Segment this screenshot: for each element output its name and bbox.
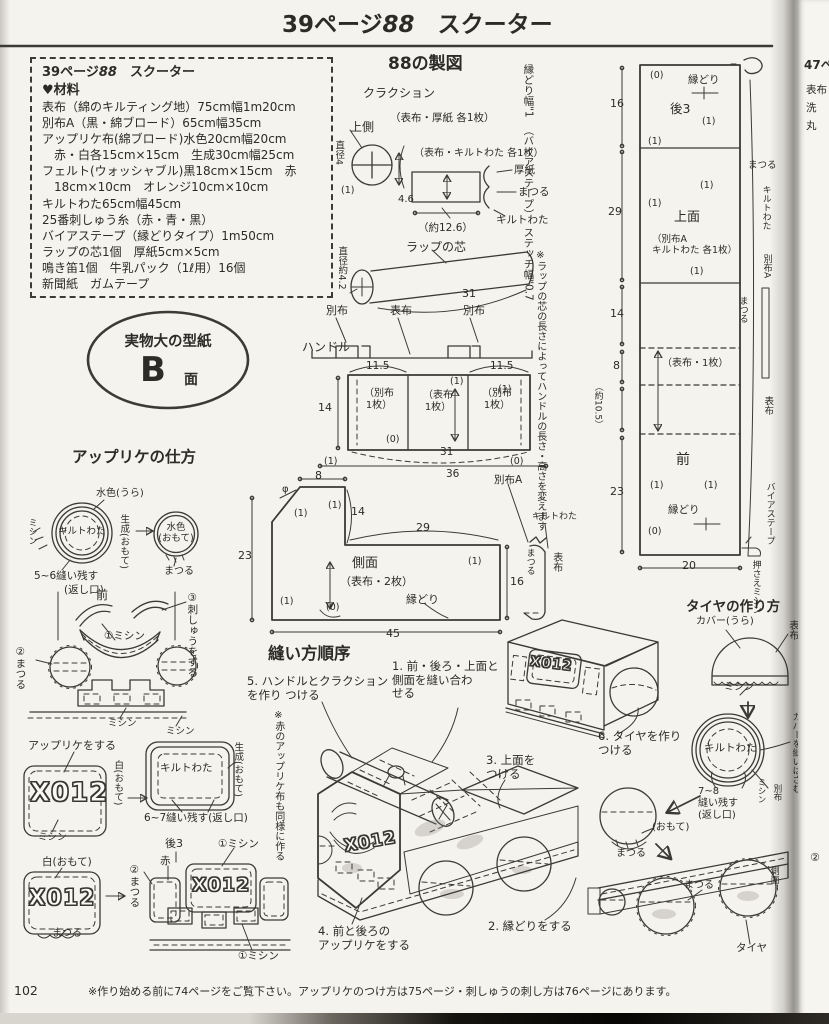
tall-allowance: (1) (704, 480, 717, 491)
tall-front-label: 前 (676, 452, 690, 469)
attach-tire-label: タイヤ (736, 942, 767, 954)
sewing-step-3: 3. 上面を つける (486, 754, 535, 781)
x012-step1: ①ミシン (218, 838, 259, 850)
x012-step2: ②まつる (128, 864, 140, 916)
tire-heading: タイヤの作り方 (686, 600, 780, 616)
tall-dim-8: 8 (613, 360, 620, 373)
side-name: 側面 (352, 556, 378, 571)
edging-note-line: 縁どり幅"1 (522, 64, 534, 118)
side-edging: 縁どり (406, 594, 439, 607)
badge-caption: 実物大の型紙 (112, 334, 224, 351)
side-allowance: (1) (328, 500, 341, 511)
side-dim-16: 16 (510, 576, 524, 589)
side-dim-8: 8 (315, 470, 322, 483)
side-material: （表布・2枚） (340, 576, 413, 589)
attach-matsuru: まつる (684, 880, 714, 892)
wrap-core-diameter: 直径約4.2 (336, 246, 347, 304)
drafting-heading: 88の製図 (388, 54, 463, 74)
applique-back-label: 水色(うら) (96, 488, 144, 500)
tire-front-side: (おもて) (652, 822, 689, 834)
handle-cloth-label: 別布 (326, 305, 348, 318)
handle-cloth-label: 別布 (463, 305, 485, 318)
handle-allowance: (0) (386, 434, 399, 445)
horn-cardboard: 厚紙 (514, 164, 535, 176)
side-allowance: (1) (294, 508, 307, 519)
handle-cell-left: （別布 1枚） (356, 388, 402, 412)
tall-dim-14: 14 (610, 308, 624, 321)
horn-upper: 上側 (350, 120, 374, 134)
edging-note: 縁どり幅"1 （バイアステープ） ステッチ幅"0.7 (522, 64, 534, 204)
scan-bottom-band (0, 1013, 829, 1024)
tall-allowance: (0) (650, 70, 663, 81)
x012-leave-open: 6~7縫い残す(返し口) (144, 812, 248, 824)
next-page-fragment: 洗 (806, 102, 817, 114)
side-dim-23: 23 (238, 550, 252, 563)
handle-height: 14 (318, 402, 332, 415)
tire-leave-open: 7~8 縫い残す (返し口) (698, 786, 738, 821)
x012-plate-text: X012 (30, 778, 102, 808)
tall-allowance: (1) (648, 198, 661, 209)
x012-back-label: 後3 (165, 838, 183, 851)
handle-allowance: (1) (324, 456, 337, 467)
tire-machine2: ミシン (756, 778, 766, 810)
badge-letter: B (140, 350, 166, 390)
side-fabric: 表布 (550, 552, 562, 580)
tall-mid-material: （表布・1枚） (662, 358, 728, 370)
sewing-step-1: 1. 前・後ろ・上面と 側面を縫い合わ せる (392, 660, 499, 701)
face-front-label: 前 (96, 588, 108, 602)
handle-width-left: 11.5 (366, 360, 389, 372)
tire-batting: キルトわた (704, 742, 757, 754)
x012-red-note: ※赤のアップリケ布も同様に作る (272, 710, 284, 824)
face-step3: ③刺しゅうをする (186, 592, 198, 692)
x012-plate-text: X012 (192, 874, 250, 896)
x012-plate-text: X012 (28, 886, 96, 911)
front-design-sketch (28, 592, 198, 726)
applique-base: 生成(おもて) (118, 514, 129, 578)
handle-allowance: (1) (450, 376, 463, 387)
tall-edging-top: 縁どり (688, 74, 720, 86)
horn-diameter: 直径4 (333, 140, 344, 190)
side-panel-sketch (252, 479, 548, 632)
x012-matsuru: まつる (52, 928, 82, 940)
tall-allowance: (1) (702, 116, 715, 127)
book-gutter-shadow (770, 0, 800, 1024)
face-machine: ミシン (108, 718, 137, 729)
wrap-core-sketch (350, 250, 533, 312)
x012-batting: キルトわた (160, 762, 213, 774)
applique-machine: ミシン (26, 518, 37, 560)
horn-batting: キルトわた (496, 214, 549, 226)
sewing-step-2: 2. 縁どりをする (488, 920, 572, 934)
handle-cell-mid: （表布 1枚） (412, 390, 464, 414)
next-page-fragment: 47ペ (804, 58, 829, 72)
tall-dim-23: 23 (610, 486, 624, 499)
tire-matsuru: まつる (616, 848, 646, 860)
next-page-fragment: 丸 (806, 120, 817, 132)
tall-press-stitch: 押さえミシン (750, 560, 761, 602)
next-page-edge (798, 0, 829, 1024)
tall-edging-bottom: 縁どり (668, 504, 700, 516)
side-dim-14: 14 (351, 506, 365, 519)
horn-mat2: （表布・キルトわた 各1枚） (414, 148, 544, 160)
applique-matsuru: まつる (164, 566, 194, 578)
side-dim-29: 29 (416, 522, 430, 535)
tall-top-name: 上面 (674, 210, 700, 225)
side-batting: キルトわた (532, 512, 577, 523)
applique-heading: アップリケの仕方 (72, 448, 196, 466)
x012-white2: 白(おもて) (42, 856, 92, 868)
tall-dim-16: 16 (610, 98, 624, 111)
horn-sketch (350, 130, 516, 218)
tire-attach-sketch (588, 788, 788, 944)
next-page-fragment: 表布 (806, 84, 827, 96)
tall-back-label: 後3 (670, 102, 690, 117)
applique-batting: キルトわた (58, 526, 106, 537)
edging-note-line: ステッチ幅"0.7 (522, 227, 534, 301)
wrap-core-length: 31 (462, 288, 476, 301)
x012-red: 赤 (160, 855, 171, 867)
side-allowance: (1) (468, 556, 481, 567)
side-allowance: (0) (326, 602, 339, 613)
face-step1: ①ミシン (104, 630, 145, 642)
tall-top-material: （別布A キルトわた 各1枚） (652, 234, 737, 256)
tall-dim-20: 20 (682, 560, 696, 573)
handle-allowance: (0) (510, 456, 523, 467)
step-leaders (322, 702, 638, 924)
handle-cloth-label: 表布 (390, 305, 412, 318)
horn-matsuru: まつる (518, 186, 550, 198)
wrap-core-note: ※ラップの芯の長さによってハンドルの長さ・高さを変えます (534, 250, 546, 358)
tall-allowance: (1) (690, 266, 703, 277)
page-number: 102 (14, 984, 38, 999)
sewing-step-5: 5. ハンドルとクラクション を作り つける (247, 675, 388, 702)
tall-dim-approx: （約10.5） (592, 382, 603, 438)
wrap-core-label: ラップの芯 (406, 240, 466, 254)
horn-approx-width: （約12.6） (418, 222, 473, 234)
side-phi: φ (282, 484, 289, 496)
handle-dim-36: 36 (446, 468, 459, 480)
next-page-fragment: ② (810, 852, 820, 865)
horn-title: クラクション (363, 86, 435, 100)
face-step2: ②まつる (14, 646, 26, 702)
tall-allowance: (1) (648, 136, 661, 147)
applique-front-label: 水色 (おもて) (154, 522, 198, 544)
side-allowance: (1) (280, 596, 293, 607)
tire-machine: ミシン (724, 682, 754, 694)
horn-allowance: (1) (341, 185, 354, 196)
tire-cover-label: カバー(うら) (696, 616, 754, 628)
face-machine: ミシン (166, 726, 195, 737)
x012-machine-bottom: ①ミシン (238, 950, 279, 962)
handle-width-right: 11.5 (490, 360, 513, 372)
magazine-page: 39ページ88 スクーター 39ページ88 スクーター ♥材料 表布（綿のキルテ… (0, 0, 829, 1024)
side-cloth-a: 別布A (494, 474, 522, 486)
handle-pattern-sketch (320, 366, 546, 466)
x012-white: 白(おもて) (112, 760, 123, 816)
tall-dim-29: 29 (608, 206, 622, 219)
sewing-heading: 縫い方順序 (268, 644, 351, 663)
x012-machine: ミシン (38, 832, 67, 843)
footer-note: ※作り始める前に74ページをご覧下さい。アップリケのつけ方は75ページ・刺しゅう… (88, 986, 676, 999)
badge-suffix: 面 (184, 372, 198, 389)
applique-leave-open: 5~6縫い残す (34, 570, 98, 582)
tall-allowance: (1) (700, 180, 713, 191)
tall-allowance: (0) (648, 526, 661, 537)
sewing-step-4: 4. 前と後ろの アップリケをする (318, 925, 410, 952)
x012-base: 生成(おもて) (232, 742, 243, 808)
big-scooter-sketch (317, 746, 578, 920)
handle-dim-31: 31 (440, 446, 453, 458)
handle-cell-right: （別布 1枚） (472, 388, 522, 412)
side-dim-45: 45 (386, 628, 400, 641)
horn-mat1: （表布・厚紙 各1枚） (390, 112, 495, 124)
side-matsuru: まつる (524, 548, 535, 584)
x012-do-applique: アップリケをする (28, 740, 116, 753)
tall-allowance: (1) (650, 480, 663, 491)
horn-height: 4.6 (398, 194, 414, 206)
sewing-step-6: 6. タイヤを作り つける (598, 730, 681, 757)
handle-label: ハンドル (302, 340, 350, 354)
pattern-badge-oval (88, 312, 248, 408)
tall-matsuru-mid: まつる (737, 296, 748, 330)
